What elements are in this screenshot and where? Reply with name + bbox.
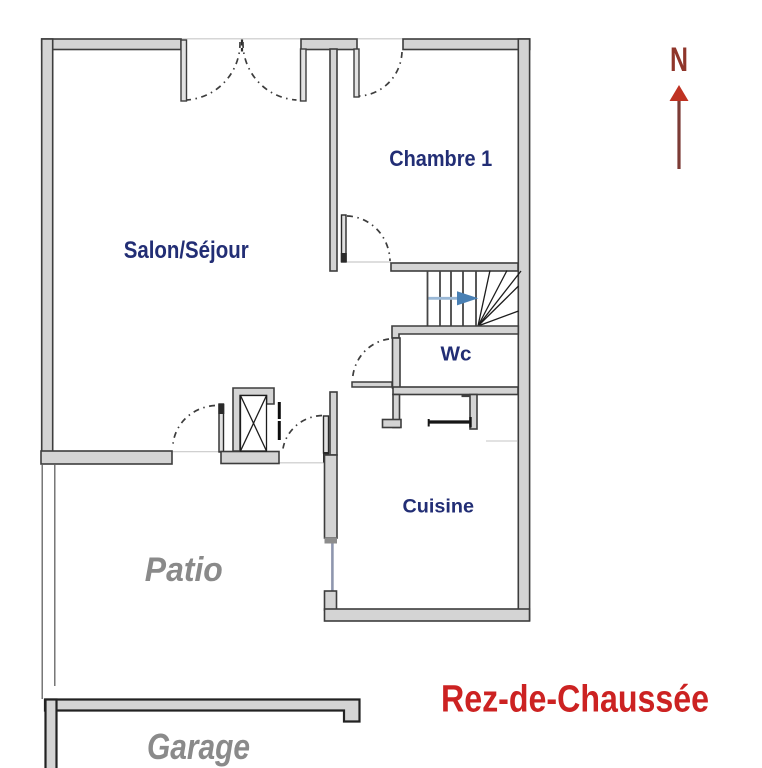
svg-text:Wc: Wc bbox=[441, 343, 472, 365]
svg-text:Garage: Garage bbox=[147, 726, 250, 767]
svg-text:Cuisine: Cuisine bbox=[403, 495, 475, 517]
svg-text:N: N bbox=[670, 41, 688, 79]
svg-text:Salon/Séjour: Salon/Séjour bbox=[124, 237, 249, 264]
svg-text:Rez-de-Chaussée: Rez-de-Chaussée bbox=[441, 679, 709, 721]
svg-text:Patio: Patio bbox=[145, 551, 223, 589]
svg-text:Chambre 1: Chambre 1 bbox=[389, 146, 492, 171]
